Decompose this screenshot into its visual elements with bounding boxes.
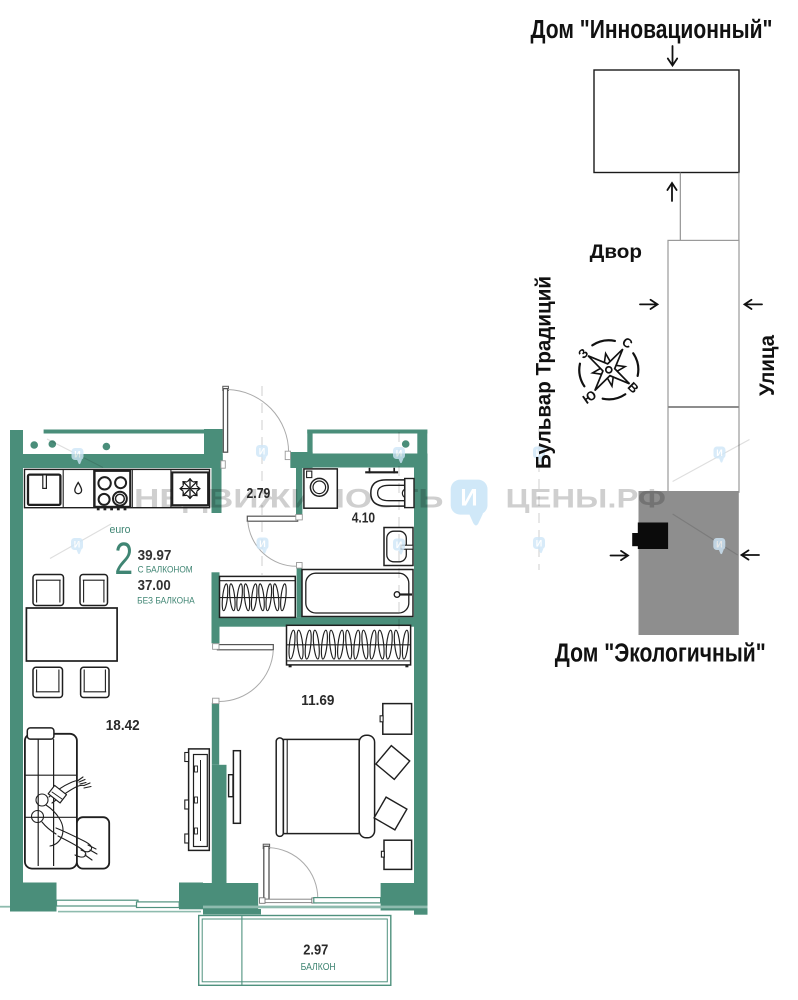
svg-text:БЕЗ БАЛКОНА: БЕЗ БАЛКОНА	[137, 595, 195, 606]
svg-text:БАЛКОН: БАЛКОН	[301, 962, 336, 973]
svg-text:С БАЛКОНОМ: С БАЛКОНОМ	[138, 565, 193, 576]
svg-text:И: И	[460, 485, 477, 512]
svg-text:И: И	[259, 539, 265, 549]
svg-text:39.97: 39.97	[138, 548, 172, 564]
svg-text:2.97: 2.97	[303, 943, 328, 959]
svg-text:Улица: Улица	[756, 335, 779, 396]
svg-text:И: И	[536, 539, 542, 549]
svg-text:Дом "Экологичный": Дом "Экологичный"	[555, 640, 766, 668]
svg-text:И: И	[716, 540, 722, 550]
svg-text:4.10: 4.10	[352, 510, 375, 526]
svg-text:И: И	[259, 447, 265, 457]
svg-text:Дом "Инновационный": Дом "Инновационный"	[531, 16, 773, 44]
svg-text:И: И	[74, 540, 80, 550]
svg-text:2: 2	[115, 533, 134, 584]
svg-text:18.42: 18.42	[106, 718, 140, 734]
svg-text:И: И	[74, 450, 80, 460]
svg-text:И: И	[396, 449, 402, 459]
svg-text:И: И	[396, 540, 402, 550]
svg-text:Двор: Двор	[590, 241, 642, 263]
svg-text:11.69: 11.69	[301, 693, 334, 709]
svg-text:Бульвар Традиций: Бульвар Традиций	[533, 276, 556, 469]
svg-text:37.00: 37.00	[138, 578, 171, 594]
svg-text:И: И	[716, 448, 722, 458]
svg-text:ЦЕНЫ.РФ: ЦЕНЫ.РФ	[506, 484, 667, 514]
svg-text:2.79: 2.79	[247, 486, 271, 502]
